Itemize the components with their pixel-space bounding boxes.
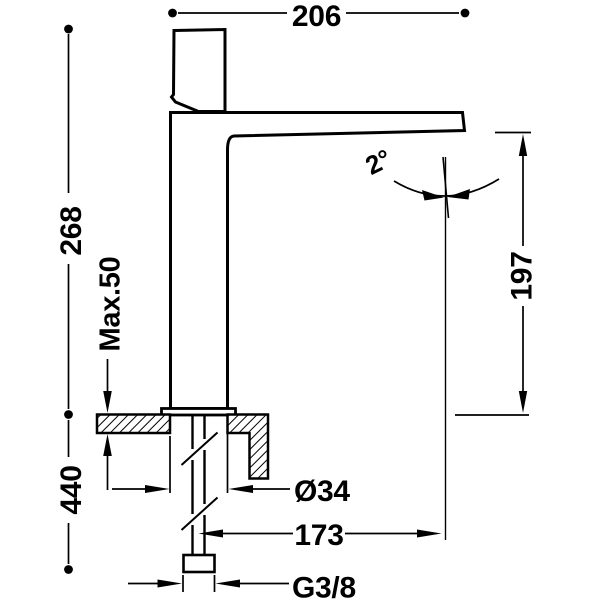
dim-dot xyxy=(461,9,470,18)
technical-drawing-canvas: 206 268 Max.50 440 2° 197 Ø34 173 G3/8 xyxy=(0,0,600,600)
faucet-body-and-spout xyxy=(171,113,465,409)
dim-line-g38 xyxy=(128,575,289,592)
dim-dot xyxy=(168,9,177,18)
countertop-right-section xyxy=(228,415,269,479)
label-outlet-height: 197 xyxy=(506,251,539,300)
label-total-height: 440 xyxy=(55,465,88,514)
arrowhead-g38-left xyxy=(216,580,241,588)
arrowhead-197-down xyxy=(519,391,527,413)
pipe-break-mark-lower xyxy=(182,498,218,531)
arrowhead-max50-up xyxy=(103,434,112,456)
label-supply-thread: G3/8 xyxy=(292,572,356,600)
dim-dot xyxy=(64,410,73,419)
arrowhead-197-up xyxy=(519,134,527,156)
label-max-deck-thickness: Max.50 xyxy=(95,257,127,352)
faucet-dimension-diagram: 206 268 Max.50 440 2° 197 Ø34 173 G3/8 xyxy=(0,0,600,600)
label-spout-width: 206 xyxy=(292,0,341,33)
arrowhead-g38-right xyxy=(158,580,183,588)
arrowhead-173-right xyxy=(417,530,442,538)
arrowhead-173-left xyxy=(199,530,224,538)
dim-dot xyxy=(64,565,73,574)
base-plate xyxy=(162,409,236,416)
arrowhead-max50-down xyxy=(103,391,112,413)
pipe-break-mark-upper xyxy=(182,433,218,466)
label-spout-projection: 173 xyxy=(294,519,343,552)
arrowhead-o34-left xyxy=(229,485,254,493)
dim-dot xyxy=(64,25,73,34)
arrowhead-arc-right xyxy=(448,189,471,200)
faucet-handle xyxy=(172,30,226,112)
countertop-left-section xyxy=(97,415,170,434)
label-height-above-deck: 268 xyxy=(55,206,88,255)
connection-nut xyxy=(184,555,215,572)
label-spout-tilt-angle: 2° xyxy=(361,143,396,181)
arrowhead-o34-right xyxy=(145,485,170,493)
label-body-diameter: Ø34 xyxy=(294,475,350,508)
